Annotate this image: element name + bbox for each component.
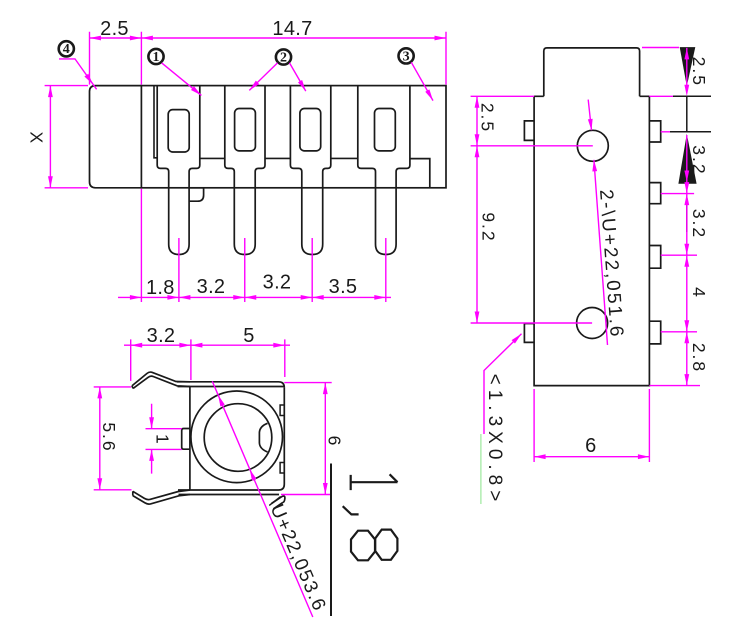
svg-text:2.5: 2.5: [478, 103, 498, 133]
svg-text:<1.3X0.8>: <1.3X0.8>: [484, 374, 505, 507]
svg-text:14.7: 14.7: [272, 18, 312, 40]
svg-text:4: 4: [689, 287, 709, 299]
svg-text:5: 5: [243, 325, 254, 347]
svg-text:2.5: 2.5: [100, 18, 129, 40]
svg-text:2.5: 2.5: [689, 57, 709, 87]
svg-text:3.5: 3.5: [329, 276, 358, 298]
svg-text:9.2: 9.2: [479, 212, 499, 242]
svg-text:4: 4: [63, 42, 70, 57]
svg-text:3.2: 3.2: [197, 276, 226, 298]
svg-text:6: 6: [325, 436, 345, 448]
svg-text:1: 1: [153, 434, 173, 446]
svg-text:3.2: 3.2: [263, 272, 292, 294]
svg-text:3: 3: [403, 49, 410, 64]
svg-text:X: X: [27, 132, 47, 146]
svg-text:3.2: 3.2: [147, 325, 176, 347]
svg-text:6: 6: [585, 435, 596, 457]
svg-text:1.8: 1.8: [146, 277, 175, 299]
svg-text:2.8: 2.8: [689, 343, 709, 373]
svg-text:3.2: 3.2: [689, 209, 709, 239]
svg-text:5.6: 5.6: [99, 422, 119, 452]
svg-text:2: 2: [280, 50, 287, 65]
svg-text:1: 1: [153, 50, 160, 65]
svg-text:3.2: 3.2: [689, 145, 709, 175]
